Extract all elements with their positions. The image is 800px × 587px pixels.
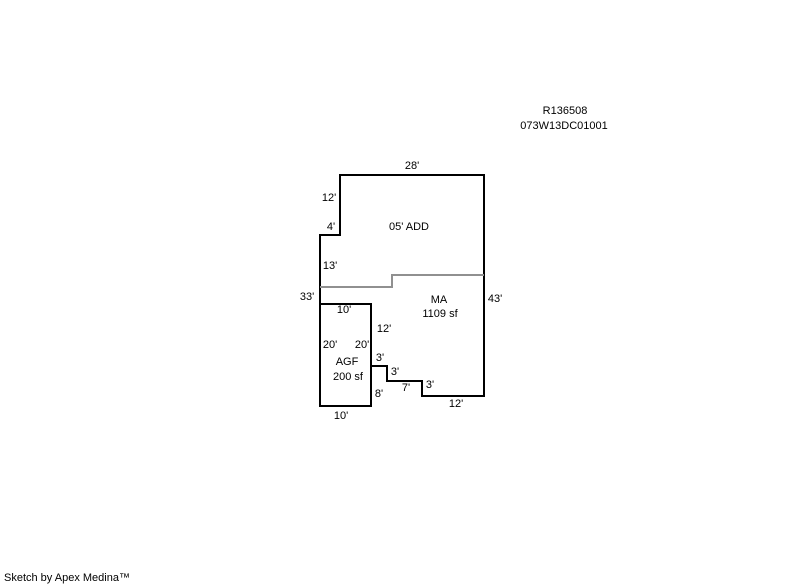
dimension-label: 3' xyxy=(426,379,434,391)
dimension-label: 8' xyxy=(375,388,383,400)
dimension-label: 43' xyxy=(488,293,502,305)
dimension-label: 10' xyxy=(337,304,351,316)
addition-division-line xyxy=(320,275,484,287)
dimension-label: 20' xyxy=(323,339,337,351)
dimension-label: 12' xyxy=(449,398,463,410)
area-label: 200 sf xyxy=(333,371,363,383)
area-label: 1109 sf xyxy=(422,308,457,320)
dimension-label: 12' xyxy=(322,192,336,204)
dimension-label: 7' xyxy=(402,382,410,394)
dimension-label: 3' xyxy=(376,352,384,364)
dimension-label: 13' xyxy=(323,260,337,272)
dimension-label: 10' xyxy=(334,410,348,422)
sketch-page: R136508 073W13DC01001 28'12'4'05' ADD13'… xyxy=(0,0,800,587)
dimension-label: 3' xyxy=(391,366,399,378)
dimension-label: 12' xyxy=(377,323,391,335)
dimension-label: 20' xyxy=(355,339,369,351)
sketch-credit: Sketch by Apex Medina™ xyxy=(4,572,130,584)
area-label: AGF xyxy=(336,356,359,368)
dimension-label: 28' xyxy=(405,160,419,172)
area-label: MA xyxy=(431,294,448,306)
dimension-label: 33' xyxy=(300,291,314,303)
area-label: 05' ADD xyxy=(389,221,429,233)
floorplan-canvas xyxy=(0,0,800,587)
agf-garage-outline xyxy=(320,304,371,406)
dimension-label: 4' xyxy=(327,221,335,233)
